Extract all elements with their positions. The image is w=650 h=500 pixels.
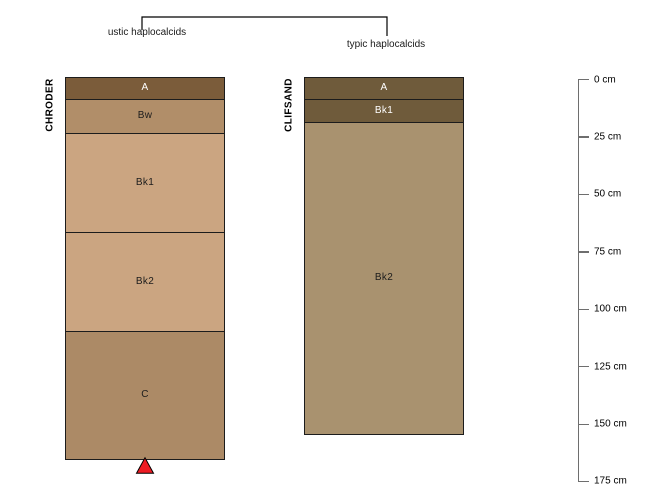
group-label-ustic-haplocalcids: ustic haplocalcids — [108, 27, 186, 38]
depth-axis-label-50: 50 cm — [594, 189, 621, 200]
depth-axis-tick-125 — [578, 366, 589, 367]
depth-axis-label-150: 150 cm — [594, 419, 627, 430]
horizon-label: A — [381, 83, 388, 93]
horizon-chroder-a: A — [66, 78, 224, 99]
horizon-label: Bw — [138, 111, 153, 121]
profile-id-clifsand: CLIFSAND — [284, 78, 295, 132]
depth-axis-tick-25 — [578, 136, 589, 137]
depth-axis-tick-75 — [578, 251, 589, 252]
profile-id-chroder: CHRODER — [45, 78, 56, 131]
depth-axis-label-175: 175 cm — [594, 476, 627, 487]
soil-profile-chroder: ABwBk1Bk2C — [65, 77, 225, 460]
horizon-clifsand-bk1: Bk1 — [305, 99, 463, 122]
horizon-label: Bk1 — [136, 178, 154, 188]
depth-axis-label-125: 125 cm — [594, 361, 627, 372]
horizon-label: Bk1 — [375, 106, 393, 116]
depth-axis-tick-150 — [578, 424, 589, 425]
horizon-chroder-bw: Bw — [66, 99, 224, 133]
horizon-clifsand-a: A — [305, 78, 463, 99]
depth-axis-tick-0 — [578, 79, 589, 80]
depth-axis-label-25: 25 cm — [594, 131, 621, 142]
horizon-label: C — [141, 390, 149, 400]
horizon-label: Bk2 — [375, 273, 393, 283]
horizon-chroder-c: C — [66, 331, 224, 460]
depth-axis-label-0: 0 cm — [594, 74, 616, 85]
depth-axis-label-100: 100 cm — [594, 304, 627, 315]
depth-axis-tick-175 — [578, 481, 589, 482]
horizon-label: Bk2 — [136, 277, 154, 287]
horizon-chroder-bk2: Bk2 — [66, 232, 224, 331]
depth-axis-tick-100 — [578, 309, 589, 310]
soil-profile-figure: ustic haplocalcids typic haplocalcids AB… — [0, 0, 650, 500]
depth-axis-label-75: 75 cm — [594, 246, 621, 257]
depth-axis-tick-50 — [578, 194, 589, 195]
horizon-label: A — [142, 83, 149, 93]
horizon-clifsand-bk2: Bk2 — [305, 122, 463, 434]
soil-profile-clifsand: ABk1Bk2 — [304, 77, 464, 435]
horizon-chroder-bk1: Bk1 — [66, 133, 224, 232]
depth-axis-line — [578, 79, 579, 481]
group-label-typic-haplocalcids: typic haplocalcids — [347, 39, 425, 50]
